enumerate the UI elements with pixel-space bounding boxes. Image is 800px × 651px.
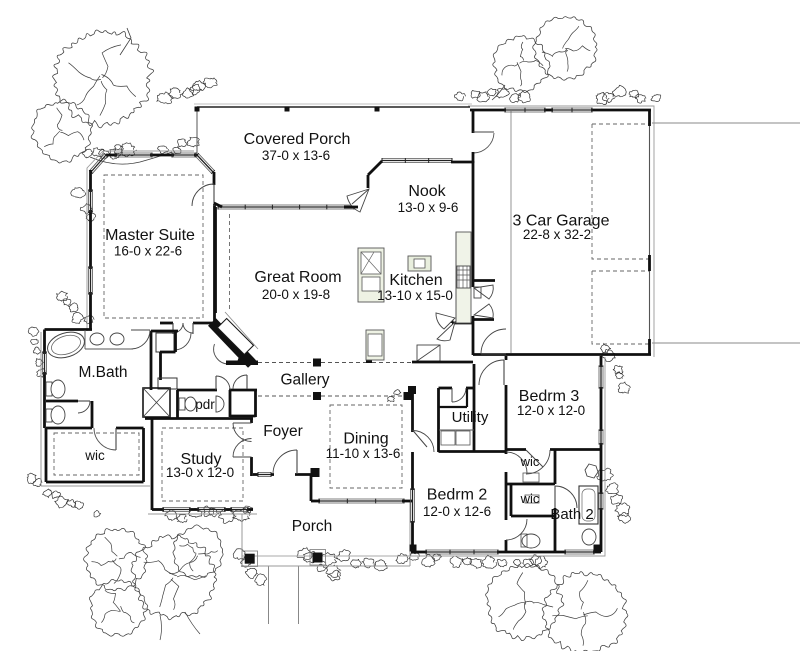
svg-text:12-0 x 12-6: 12-0 x 12-6 — [423, 504, 491, 519]
svg-text:20-0 x 19-8: 20-0 x 19-8 — [262, 287, 330, 302]
svg-text:pdr: pdr — [195, 397, 215, 412]
svg-text:Dining: Dining — [343, 431, 388, 448]
svg-text:Covered Porch: Covered Porch — [244, 131, 351, 148]
svg-text:wic: wic — [520, 454, 540, 469]
svg-text:M.Bath: M.Bath — [78, 364, 127, 381]
svg-text:Utility: Utility — [452, 409, 489, 426]
svg-text:Porch: Porch — [292, 518, 333, 535]
svg-text:Bedrm 2: Bedrm 2 — [427, 487, 488, 504]
svg-text:13-10 x 15-0: 13-10 x 15-0 — [377, 288, 453, 303]
svg-text:Bath 2: Bath 2 — [550, 506, 593, 523]
svg-text:37-0 x 13-6: 37-0 x 13-6 — [262, 148, 330, 163]
svg-text:Gallery: Gallery — [280, 372, 329, 389]
svg-text:Kitchen: Kitchen — [389, 272, 442, 289]
svg-text:wic: wic — [520, 491, 540, 506]
svg-text:11-10 x 13-6: 11-10 x 13-6 — [326, 446, 401, 461]
svg-text:13-0 x 12-0: 13-0 x 12-0 — [166, 465, 234, 480]
svg-text:Great Room: Great Room — [254, 269, 341, 286]
svg-text:wic: wic — [84, 448, 105, 463]
svg-text:12-0 x 12-0: 12-0 x 12-0 — [517, 403, 585, 418]
svg-text:13-0 x 9-6: 13-0 x 9-6 — [398, 200, 459, 215]
svg-text:22-8 x 32-2: 22-8 x 32-2 — [523, 227, 591, 242]
svg-text:Foyer: Foyer — [263, 423, 303, 440]
svg-text:Master Suite: Master Suite — [105, 227, 195, 244]
svg-text:Nook: Nook — [408, 183, 446, 200]
svg-text:16-0 x 22-6: 16-0 x 22-6 — [114, 244, 182, 259]
